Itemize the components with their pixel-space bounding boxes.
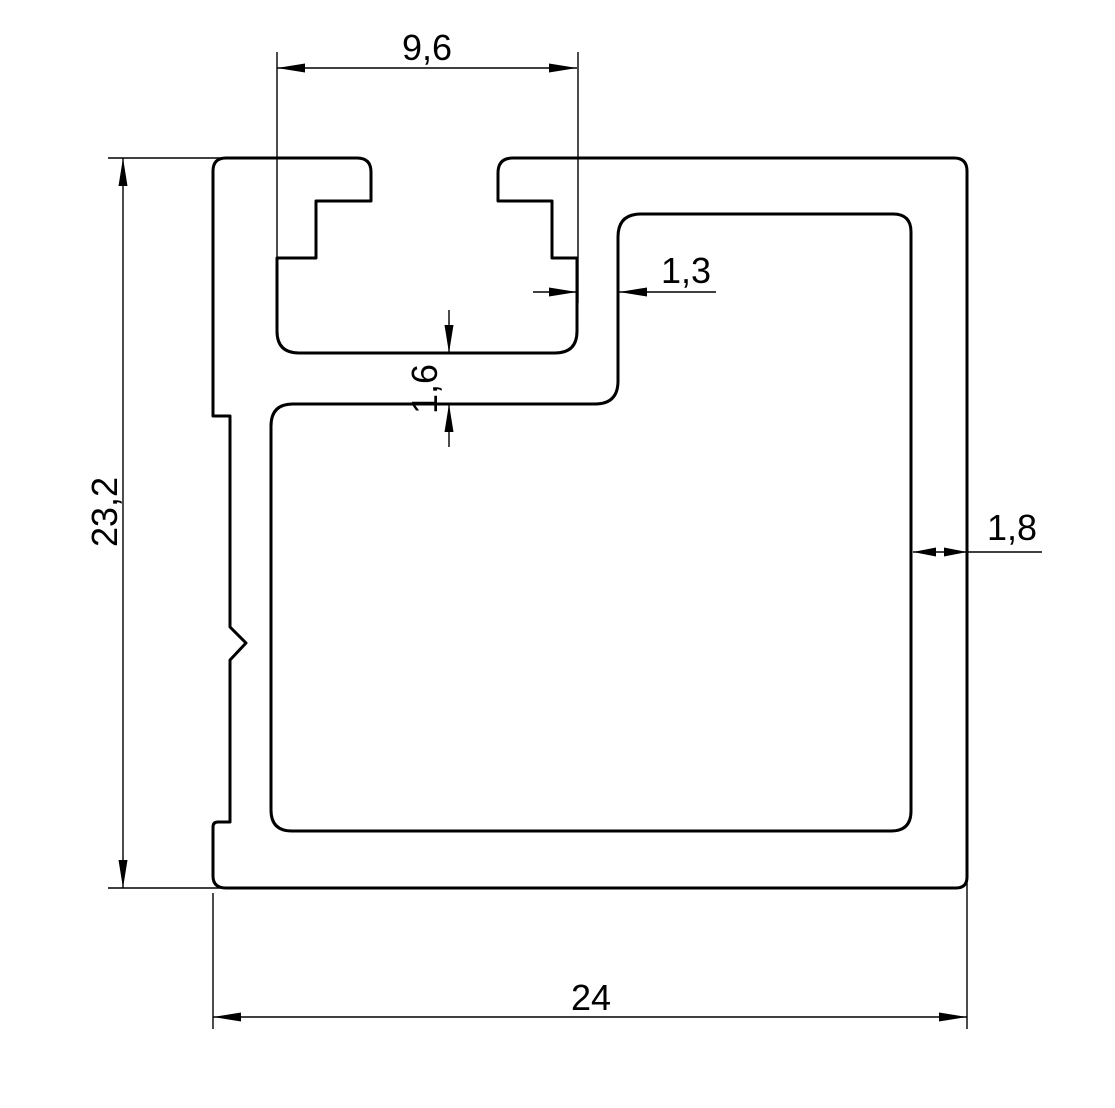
arrowhead-right-icon <box>944 548 967 557</box>
profile-cross-section-drawing: 9,6 23,2 1,3 1,6 <box>0 0 1115 1108</box>
arrowhead-up-icon <box>445 404 454 432</box>
profile-inner-cavity <box>271 214 911 831</box>
dimension-outer-wall: 1,8 <box>913 507 1042 557</box>
arrowhead-right-icon <box>549 64 577 73</box>
dimension-value: 23,2 <box>84 477 125 547</box>
arrowhead-down-icon <box>119 860 128 888</box>
profile-geometry <box>213 158 967 888</box>
arrowhead-left-icon <box>213 1013 241 1022</box>
arrowhead-up-icon <box>119 158 128 186</box>
technical-drawing-canvas: 9,6 23,2 1,3 1,6 <box>0 0 1115 1108</box>
arrowhead-down-icon <box>445 325 454 353</box>
dimension-slot-width: 9,6 <box>277 27 578 303</box>
arrowhead-right-icon <box>939 1013 967 1022</box>
dimension-slot-bottom-wall: 1,6 <box>404 310 454 447</box>
arrowhead-left-icon <box>277 64 305 73</box>
arrowhead-right-icon <box>549 288 577 297</box>
profile-outer-contour <box>213 158 967 888</box>
dimension-value: 1,8 <box>987 507 1037 548</box>
dimension-value: 1,6 <box>404 364 445 414</box>
dimension-value: 9,6 <box>402 27 452 68</box>
arrowhead-left-icon <box>619 288 647 297</box>
dimension-value: 24 <box>571 977 611 1018</box>
dimension-overall-width: 24 <box>213 880 967 1029</box>
arrowhead-left-icon <box>913 548 936 557</box>
dimension-value: 1,3 <box>661 250 711 291</box>
dimension-overall-height: 23,2 <box>84 158 230 888</box>
